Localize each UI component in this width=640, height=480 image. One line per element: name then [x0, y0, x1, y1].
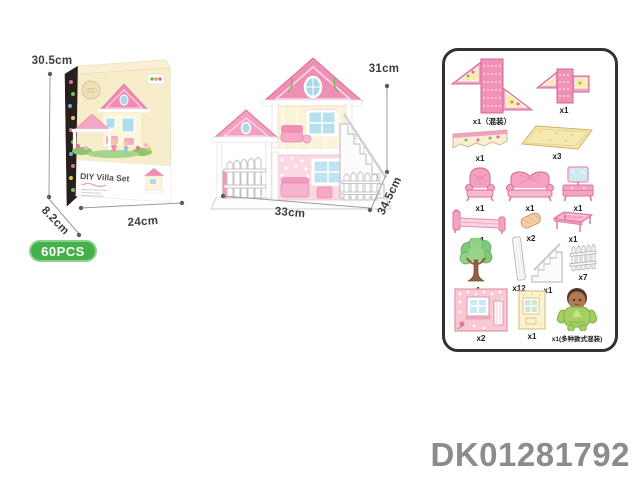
tree-icon	[456, 238, 496, 284]
product-sheet: DIY Villa Set	[0, 0, 640, 480]
part-qty: x1	[476, 154, 485, 163]
pillar-icon	[508, 236, 530, 282]
house-roof	[262, 58, 362, 106]
eave-panel-icon	[452, 128, 508, 152]
roof-panel-small-icon	[535, 68, 593, 104]
right-fence	[342, 172, 380, 201]
pieces-count-badge: 60PCS	[29, 240, 97, 262]
part-sofa: x1	[506, 170, 554, 213]
house-height-label: 31cm	[362, 63, 406, 75]
box-stamp	[82, 81, 100, 99]
part-wall-pink: x2	[454, 288, 508, 343]
assembled-house-image	[210, 48, 400, 233]
part-eave-panel: x1	[452, 128, 508, 163]
part-armchair: x1	[462, 166, 498, 213]
part-qty: x1（混装）	[473, 116, 511, 127]
coffee-table-icon	[552, 210, 594, 233]
stairs-icon	[530, 242, 566, 284]
part-qty: x1(多种款式混装)	[552, 333, 603, 343]
part-roof-panel-large: x1（混装）	[450, 58, 534, 127]
part-qty: x2	[477, 334, 486, 343]
part-pillar: x12	[508, 236, 530, 293]
left-fence	[224, 157, 266, 198]
box-height-line	[49, 76, 50, 195]
dresser-mirror-icon	[561, 166, 595, 202]
box-width-label: 24cm	[118, 214, 169, 229]
box-title-band: DIY Villa Set	[76, 160, 171, 202]
part-qty: x1	[528, 332, 537, 341]
bed-icon	[452, 208, 508, 234]
product-code: DK01281792	[420, 436, 630, 474]
part-roof-panel-small: x1	[534, 68, 594, 115]
part-floor-panel: x3	[520, 124, 594, 161]
part-coffee-table: x1	[552, 210, 594, 244]
part-fence: x7	[568, 240, 598, 282]
pillow-roll-icon	[518, 210, 544, 232]
box-logo	[148, 74, 164, 84]
product-box-image: DIY Villa Set	[58, 56, 176, 208]
part-tree: x1	[456, 238, 496, 295]
armchair-icon	[464, 166, 496, 202]
wall-pink-window-icon	[454, 288, 508, 332]
floor-panel-icon	[520, 124, 594, 150]
part-qty: x7	[579, 273, 588, 282]
part-qty: x1	[560, 106, 569, 115]
box-height-label: 30.5cm	[30, 55, 74, 67]
part-dresser-mirror: x1	[560, 166, 596, 213]
fence-icon	[568, 240, 598, 271]
part-wall-cream: x1	[516, 290, 548, 341]
sofa-icon	[506, 170, 554, 202]
part-qty: x3	[553, 152, 562, 161]
roof-panel-large-icon	[450, 58, 534, 114]
part-doll: x1(多种款式混装)	[548, 286, 606, 343]
wall-cream-window-icon	[518, 290, 546, 330]
doll-icon	[554, 286, 600, 331]
